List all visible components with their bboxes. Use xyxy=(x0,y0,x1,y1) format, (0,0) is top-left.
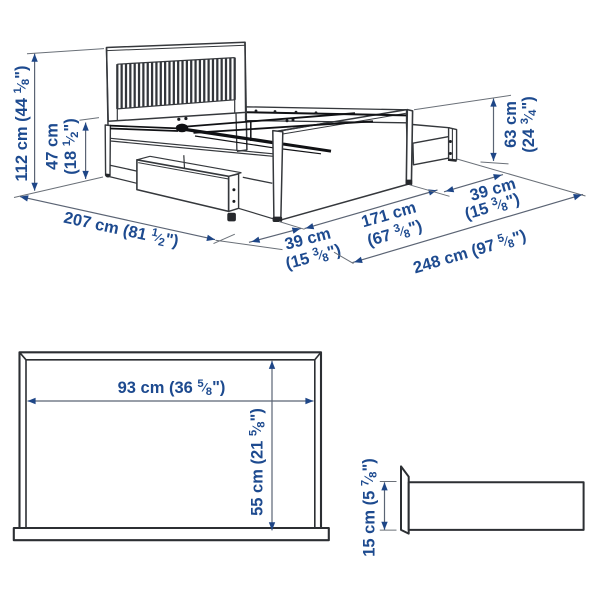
svg-text:47 cm: 47 cm xyxy=(43,123,61,170)
svg-text:63 cm: 63 cm xyxy=(502,101,520,148)
svg-text:(24 3⁄4"): (24 3⁄4") xyxy=(519,96,539,152)
svg-text:(18 1⁄2"): (18 1⁄2") xyxy=(61,118,81,174)
